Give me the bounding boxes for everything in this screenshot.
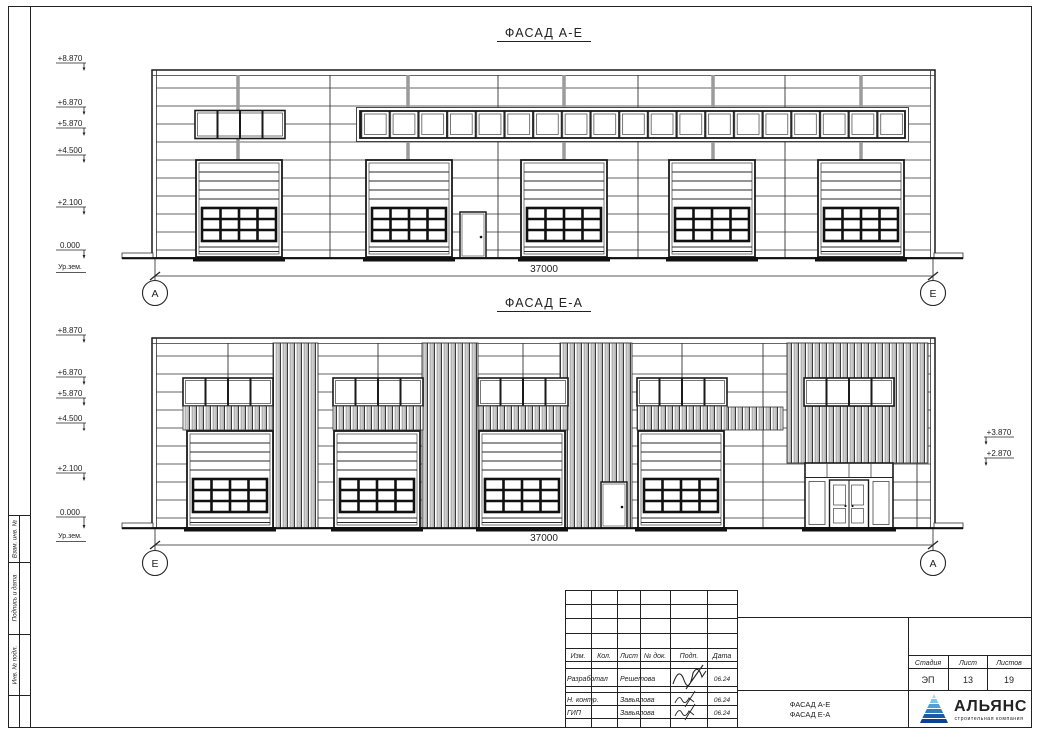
axis-markers: Е А <box>143 551 946 576</box>
logo-pyramid-icon <box>920 694 948 723</box>
entrance-door <box>601 482 627 528</box>
svg-text:+2.100: +2.100 <box>58 464 83 473</box>
drawing-canvas: ФАСАД А-Е <box>0 0 1040 735</box>
axis-label: А <box>151 288 158 300</box>
logo-name: АЛЬЯНС <box>954 698 1027 715</box>
row-name: Решетова <box>620 676 655 683</box>
svg-text:+8.870: +8.870 <box>58 54 83 63</box>
axis-label: Е <box>929 288 936 300</box>
doc-name-line1: ФАСАД А-Е <box>790 700 831 709</box>
window-strip <box>478 378 568 406</box>
svg-text:+4.500: +4.500 <box>58 414 83 423</box>
window-strip <box>637 378 727 406</box>
sectional-door <box>366 160 452 257</box>
sectional-door <box>187 431 273 528</box>
dimension-value: 37000 <box>530 533 558 544</box>
sectional-door <box>818 160 904 257</box>
row-role: Н. контр. <box>567 697 599 704</box>
row-date: 06.24 <box>714 710 731 717</box>
row-name: Завьялова <box>620 697 655 704</box>
margin-stamp-labels: Взам. инв. № Подпись и дата Инв. № подл. <box>12 520 19 685</box>
window-strip <box>195 111 285 139</box>
svg-text:0.000: 0.000 <box>60 241 81 250</box>
sectional-door <box>521 160 607 257</box>
svg-text:Листов: Листов <box>995 660 1022 667</box>
row-role: ГИП <box>567 710 582 717</box>
axis-label: А <box>929 558 936 570</box>
svg-text:+6.870: +6.870 <box>58 98 83 107</box>
svg-text:+3.870: +3.870 <box>987 428 1012 437</box>
drawing-sheet: ФАСАД А-Е <box>0 0 1040 735</box>
margin-label: Взам. инв. № <box>12 520 19 559</box>
svg-text:+4.500: +4.500 <box>58 146 83 155</box>
svg-text:Кол.: Кол. <box>597 653 611 660</box>
svg-text:Изм.: Изм. <box>571 653 586 660</box>
doc-name-line2: ФАСАД Е-А <box>790 710 831 719</box>
svg-text:+8.870: +8.870 <box>58 326 83 335</box>
axis-label: Е <box>151 558 158 570</box>
svg-text:Лист: Лист <box>958 660 977 667</box>
entrance-door <box>460 212 486 258</box>
title-block: Изм. Кол. Лист № док. Подп. Дата Разрабо… <box>566 591 1032 728</box>
sheet-total: 19 <box>1004 675 1014 685</box>
window-strip <box>804 378 894 406</box>
facade-top-title: ФАСАД А-Е <box>505 26 583 40</box>
sectional-door <box>638 431 724 528</box>
svg-text:Дата: Дата <box>712 653 732 660</box>
dimension-line: 37000 <box>150 529 938 550</box>
svg-text:+2.870: +2.870 <box>987 449 1012 458</box>
ribbon-window <box>357 108 909 142</box>
row-date: 06.24 <box>714 697 731 704</box>
sheet-number: 13 <box>963 675 973 685</box>
window-strip <box>333 378 423 406</box>
svg-text:+5.870: +5.870 <box>58 119 83 128</box>
sectional-door <box>196 160 282 257</box>
svg-text:Подп.: Подп. <box>680 652 699 660</box>
stage-value: ЭП <box>922 675 935 685</box>
row-date: 06.24 <box>714 676 731 683</box>
facade-bottom: ФАСАД Е-А <box>56 296 1014 576</box>
svg-text:+5.870: +5.870 <box>58 389 83 398</box>
svg-text:+2.100: +2.100 <box>58 198 83 207</box>
svg-text:Лист: Лист <box>619 653 638 660</box>
row-name: Завьялова <box>620 710 655 717</box>
margin-label: Подпись и дата <box>12 574 19 621</box>
glazed-entrance <box>805 463 893 528</box>
margin-label: Инв. № подл. <box>12 646 19 684</box>
sectional-door <box>669 160 755 257</box>
svg-text:Стадия: Стадия <box>915 659 941 667</box>
row-role: Разработал <box>567 675 608 683</box>
elevation-marks-bottom: +8.870 +6.870 +5.870 +4.500 +2.100 0.000… <box>56 326 86 542</box>
sectional-door <box>479 431 565 528</box>
logo-subtitle: строительная компания <box>955 716 1024 722</box>
window-strip <box>183 378 273 406</box>
svg-text:Ур.зем.: Ур.зем. <box>58 533 82 540</box>
svg-text:Ур.зем.: Ур.зем. <box>58 264 82 271</box>
lamella-strips <box>183 406 783 430</box>
facade-bottom-title: ФАСАД Е-А <box>505 296 583 310</box>
elevation-marks-top: +8.870 +6.870 +5.870 +4.500 +2.100 0.000… <box>56 54 86 273</box>
svg-text:№ док.: № док. <box>644 652 667 660</box>
facade-top: ФАСАД А-Е <box>56 26 963 306</box>
stage-cells: Стадия Лист Листов ЭП 13 19 <box>915 659 1022 685</box>
dimension-line: 37000 <box>150 259 938 280</box>
svg-text:+6.870: +6.870 <box>58 368 83 377</box>
company-logo: АЛЬЯНС строительная компания <box>920 694 1027 723</box>
dimension-value: 37000 <box>530 264 558 275</box>
signature <box>675 691 695 707</box>
elevation-marks-right: +3.870 +2.870 <box>984 428 1014 466</box>
sectional-door <box>334 431 420 528</box>
svg-text:0.000: 0.000 <box>60 508 81 517</box>
